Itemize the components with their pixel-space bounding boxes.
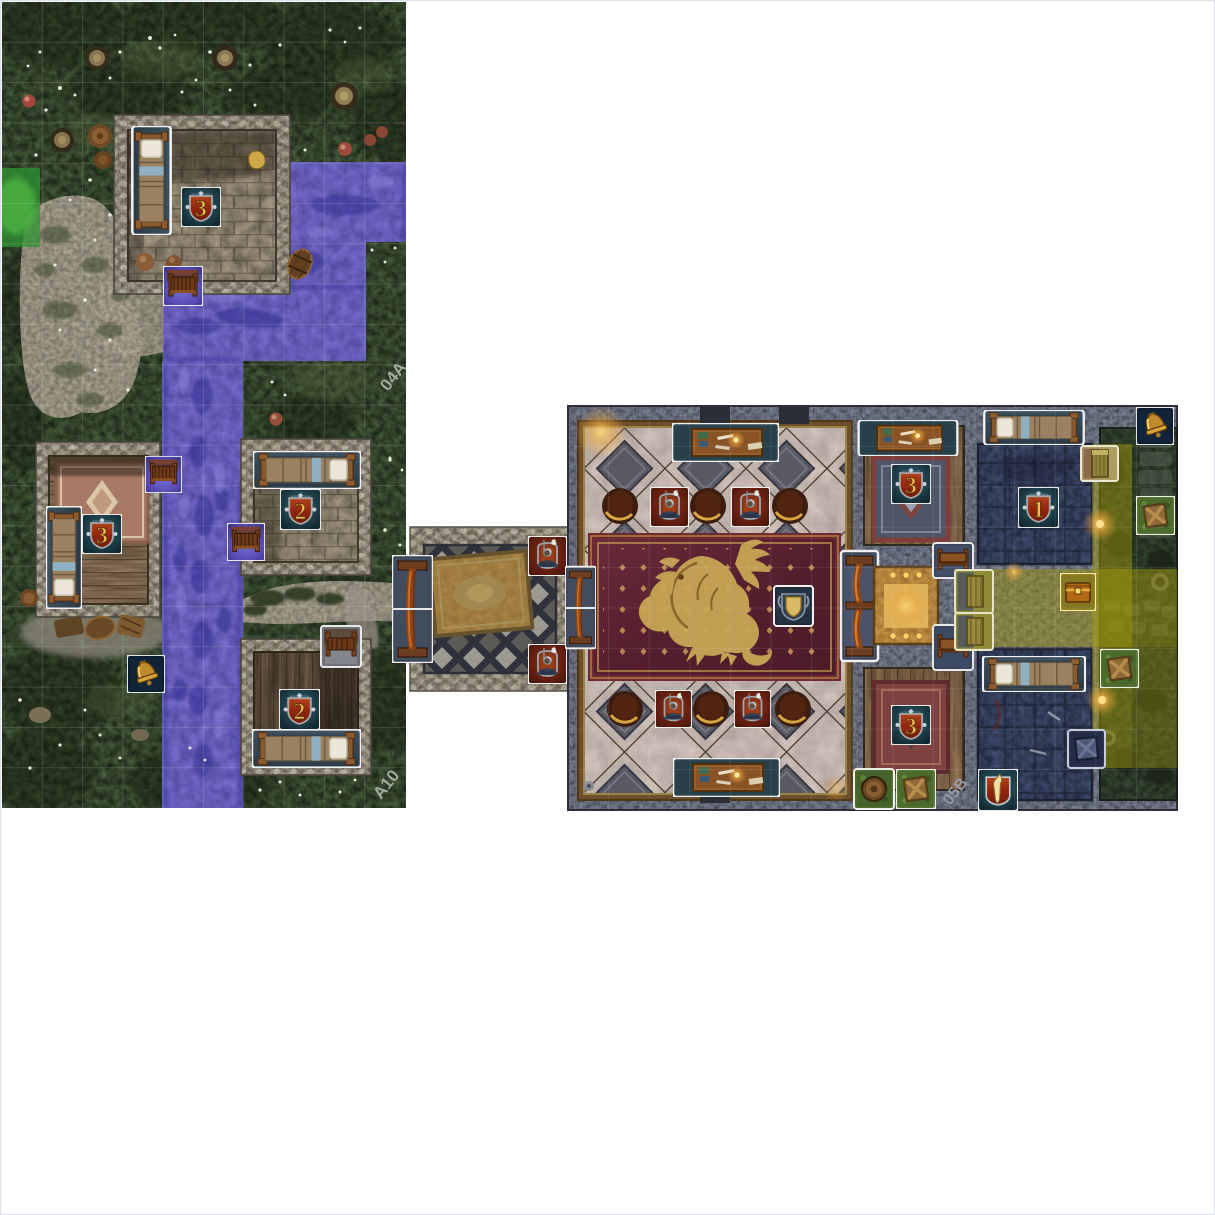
svg-text:3: 3	[905, 714, 917, 739]
svg-text:2: 2	[295, 499, 307, 524]
svg-text:2: 2	[294, 699, 306, 724]
svg-text:3: 3	[905, 473, 917, 498]
svg-text:3: 3	[96, 523, 108, 548]
svg-text:1: 1	[1033, 497, 1045, 522]
svg-text:3: 3	[195, 196, 207, 221]
